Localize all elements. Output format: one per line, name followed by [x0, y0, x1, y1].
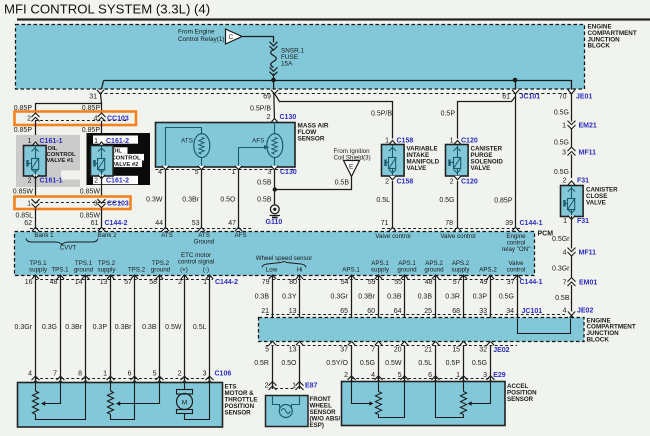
svg-text:3: 3: [483, 372, 487, 379]
svg-text:VALVE #2: VALVE #2: [112, 162, 140, 168]
svg-text:1: 1: [450, 138, 454, 145]
svg-text:15: 15: [452, 347, 460, 354]
svg-text:3: 3: [94, 200, 98, 207]
svg-text:55: 55: [394, 279, 402, 286]
svg-text:0.3Gr: 0.3Gr: [14, 324, 32, 331]
svg-text:JE02: JE02: [577, 307, 593, 314]
svg-text:control: control: [507, 266, 526, 273]
svg-text:14: 14: [75, 279, 83, 286]
svg-text:C130: C130: [280, 169, 297, 176]
svg-text:supply: supply: [29, 266, 48, 273]
svg-text:0.3Br: 0.3Br: [115, 324, 132, 331]
svg-text:44: 44: [155, 220, 163, 227]
svg-text:Low: Low: [266, 266, 278, 273]
svg-text:0.5P/B: 0.5P/B: [371, 110, 392, 117]
svg-text:0.3Y: 0.3Y: [282, 294, 297, 301]
svg-text:37: 37: [507, 279, 515, 286]
svg-text:C161-2: C161-2: [106, 138, 129, 145]
svg-text:69: 69: [263, 94, 271, 101]
svg-text:2: 2: [28, 178, 32, 185]
svg-text:ground: ground: [424, 266, 444, 273]
svg-text:65: 65: [340, 308, 348, 315]
svg-text:57: 57: [124, 279, 132, 286]
svg-text:JC101: JC101: [520, 94, 541, 101]
svg-text:C161-1: C161-1: [40, 138, 63, 145]
svg-text:0.5G: 0.5G: [472, 360, 487, 367]
svg-text:0.5B: 0.5B: [257, 179, 272, 186]
svg-text:6: 6: [428, 372, 432, 379]
svg-text:(+): (+): [180, 266, 188, 273]
svg-text:70: 70: [559, 94, 567, 101]
svg-text:C161-2: C161-2: [106, 178, 129, 185]
svg-text:APS.2: APS.2: [479, 266, 497, 273]
svg-text:control signal: control signal: [178, 258, 214, 265]
svg-text:68: 68: [452, 308, 460, 315]
svg-text:1: 1: [562, 123, 566, 130]
svg-text:0.5B: 0.5B: [335, 179, 350, 186]
svg-text:48: 48: [50, 279, 58, 286]
svg-text:0.3P: 0.3P: [473, 294, 488, 301]
svg-text:48: 48: [425, 279, 433, 286]
svg-text:ground: ground: [74, 266, 94, 273]
svg-text:F31: F31: [577, 218, 589, 225]
svg-text:4: 4: [158, 169, 162, 176]
svg-text:5: 5: [398, 372, 402, 379]
svg-text:C120: C120: [461, 138, 478, 145]
svg-text:62: 62: [24, 220, 32, 227]
svg-text:M: M: [182, 399, 188, 406]
svg-text:CONTROL: CONTROL: [112, 155, 142, 161]
svg-text:C158: C158: [397, 178, 414, 185]
svg-text:Bank 2: Bank 2: [97, 232, 117, 239]
svg-text:2: 2: [267, 114, 271, 121]
svg-text:SENSOR: SENSOR: [298, 136, 325, 143]
svg-text:4: 4: [371, 372, 375, 379]
svg-text:0.5W: 0.5W: [385, 360, 402, 367]
svg-text:0.85W: 0.85W: [13, 188, 34, 195]
svg-text:0.5Gr: 0.5Gr: [552, 236, 570, 243]
svg-text:2: 2: [94, 178, 98, 185]
svg-text:0.5P: 0.5P: [446, 360, 461, 367]
svg-text:13: 13: [289, 308, 297, 315]
svg-text:Hi: Hi: [297, 266, 303, 273]
svg-text:1: 1: [203, 279, 207, 286]
svg-text:MF11: MF11: [579, 250, 597, 257]
svg-text:C144-2: C144-2: [215, 279, 238, 286]
svg-text:E87: E87: [305, 383, 318, 390]
svg-text:2: 2: [450, 178, 454, 185]
svg-text:C144-2: C144-2: [105, 220, 128, 227]
svg-text:supply: supply: [371, 266, 390, 273]
svg-text:8: 8: [78, 371, 82, 378]
svg-text:2: 2: [178, 279, 182, 286]
svg-text:0.3Br: 0.3Br: [182, 197, 199, 204]
svg-text:71: 71: [381, 220, 389, 227]
svg-text:0.3Br: 0.3Br: [65, 324, 82, 331]
svg-text:1: 1: [27, 200, 31, 207]
svg-text:C144-1: C144-1: [520, 220, 543, 227]
svg-text:Valve control: Valve control: [375, 233, 410, 240]
svg-text:1: 1: [103, 371, 107, 378]
svg-text:0.3Br: 0.3Br: [358, 294, 375, 301]
svg-text:3: 3: [268, 169, 272, 176]
svg-text:C144-1: C144-1: [520, 279, 543, 286]
svg-text:0.5L: 0.5L: [376, 197, 390, 204]
svg-text:0.5G: 0.5G: [360, 360, 375, 367]
svg-text:2: 2: [344, 372, 348, 379]
svg-text:ATS: ATS: [161, 232, 173, 239]
svg-text:CC103: CC103: [107, 115, 129, 122]
svg-text:ground: ground: [397, 266, 417, 273]
svg-text:79: 79: [262, 279, 270, 286]
svg-text:59: 59: [368, 279, 376, 286]
svg-text:0.5G: 0.5G: [499, 294, 514, 301]
svg-text:From Engine: From Engine: [178, 29, 215, 36]
svg-text:Wheel speed sensor: Wheel speed sensor: [256, 255, 312, 262]
svg-text:MFI CONTROL SYSTEM (3.3L) (4): MFI CONTROL SYSTEM (3.3L) (4): [4, 2, 210, 17]
svg-text:53: 53: [192, 220, 200, 227]
svg-text:0.3Gr: 0.3Gr: [330, 294, 348, 301]
svg-text:E: E: [349, 164, 354, 171]
svg-text:6: 6: [128, 371, 132, 378]
svg-text:G110: G110: [266, 219, 283, 226]
svg-text:4: 4: [94, 115, 98, 122]
svg-text:0.85W: 0.85W: [80, 212, 101, 219]
svg-text:0.5B: 0.5B: [555, 295, 570, 302]
svg-text:C130: C130: [280, 114, 297, 121]
svg-text:AFS: AFS: [252, 137, 264, 144]
svg-text:E29: E29: [493, 372, 506, 379]
svg-text:2: 2: [178, 371, 182, 378]
svg-text:16: 16: [25, 279, 33, 286]
svg-text:supply: supply: [452, 266, 471, 273]
svg-text:ground: ground: [151, 266, 171, 273]
svg-text:0.85P: 0.85P: [14, 127, 33, 134]
svg-text:60: 60: [367, 308, 375, 315]
svg-text:0.3B: 0.3B: [418, 294, 433, 301]
svg-text:C158: C158: [397, 138, 414, 145]
svg-text:32: 32: [479, 347, 487, 354]
svg-text:PCM: PCM: [538, 231, 554, 238]
svg-text:2: 2: [385, 178, 389, 185]
svg-text:34: 34: [506, 308, 514, 315]
svg-text:BLOCK: BLOCK: [588, 43, 611, 50]
svg-text:(-): (-): [203, 266, 209, 273]
svg-text:61: 61: [502, 94, 510, 101]
svg-text:JC101: JC101: [522, 308, 543, 315]
svg-text:58: 58: [149, 279, 157, 286]
svg-text:TPS.2: TPS.2: [128, 266, 146, 273]
svg-text:CC103: CC103: [107, 200, 129, 207]
svg-text:7: 7: [371, 347, 375, 354]
svg-text:0.85W: 0.85W: [80, 188, 101, 195]
svg-text:1: 1: [385, 138, 389, 145]
svg-text:0.5L: 0.5L: [418, 360, 432, 367]
svg-text:13: 13: [100, 279, 108, 286]
svg-text:0.5P: 0.5P: [441, 110, 456, 117]
svg-text:3: 3: [203, 371, 207, 378]
svg-text:VALVE: VALVE: [586, 199, 606, 206]
svg-text:0.3R: 0.3R: [445, 294, 460, 301]
svg-text:31: 31: [89, 94, 97, 101]
svg-text:54: 54: [341, 279, 349, 286]
svg-text:0.5O: 0.5O: [220, 197, 236, 204]
svg-text:C: C: [229, 34, 234, 41]
svg-text:0.5B: 0.5B: [257, 197, 272, 204]
svg-text:5: 5: [195, 169, 199, 176]
svg-text:80: 80: [289, 279, 297, 286]
svg-text:4: 4: [28, 371, 32, 378]
svg-text:0.5R: 0.5R: [254, 360, 269, 367]
svg-text:VALVE: VALVE: [471, 165, 491, 172]
svg-text:0.5O: 0.5O: [281, 360, 297, 367]
svg-text:0.85P: 0.85P: [494, 197, 513, 204]
svg-text:0.3B: 0.3B: [255, 294, 270, 301]
svg-text:21: 21: [424, 347, 432, 354]
svg-text:33: 33: [479, 308, 487, 315]
svg-text:61: 61: [91, 220, 99, 227]
svg-text:F31: F31: [577, 178, 589, 185]
svg-text:0.5Y/O: 0.5Y/O: [326, 360, 348, 367]
svg-text:2: 2: [563, 178, 567, 185]
svg-text:Bank 1: Bank 1: [34, 232, 54, 239]
svg-text:3: 3: [562, 150, 566, 157]
svg-text:39: 39: [505, 220, 513, 227]
svg-text:BLOCK: BLOCK: [587, 337, 610, 344]
svg-text:0.3P: 0.3P: [93, 324, 108, 331]
svg-text:EM21: EM21: [579, 123, 597, 130]
svg-text:49: 49: [480, 279, 488, 286]
svg-text:C161-1: C161-1: [40, 178, 63, 185]
svg-text:4: 4: [563, 250, 567, 257]
svg-text:VALVE: VALVE: [407, 165, 427, 172]
svg-text:SENSOR: SENSOR: [225, 409, 252, 416]
svg-text:1: 1: [232, 169, 236, 176]
svg-text:VALVE #1: VALVE #1: [47, 158, 75, 164]
svg-text:0.85L: 0.85L: [15, 212, 33, 219]
svg-text:5: 5: [265, 347, 269, 354]
svg-text:47: 47: [228, 220, 236, 227]
svg-text:JE02: JE02: [493, 347, 509, 354]
svg-text:Control Relay(1): Control Relay(1): [178, 36, 225, 43]
svg-text:Valve control: Valve control: [440, 233, 475, 240]
svg-text:0.5G: 0.5G: [554, 110, 569, 117]
svg-text:AFS: AFS: [234, 232, 246, 239]
svg-text:ESP): ESP): [310, 422, 324, 429]
svg-text:EM01: EM01: [579, 280, 597, 287]
svg-text:2: 2: [27, 115, 31, 122]
svg-text:1: 1: [456, 372, 460, 379]
svg-text:C106: C106: [215, 371, 232, 378]
svg-text:Ground: Ground: [194, 239, 215, 246]
svg-text:TPS.1: TPS.1: [51, 266, 69, 273]
svg-text:C120: C120: [461, 178, 478, 185]
svg-text:13: 13: [289, 347, 297, 354]
svg-text:0.5W: 0.5W: [165, 324, 182, 331]
svg-text:0.5P/B: 0.5P/B: [250, 106, 271, 113]
svg-text:APS.1: APS.1: [342, 266, 360, 273]
svg-text:57: 57: [453, 279, 461, 286]
svg-text:0.85P: 0.85P: [82, 127, 101, 134]
svg-text:0.5G: 0.5G: [439, 197, 454, 204]
svg-text:4: 4: [563, 307, 567, 314]
svg-text:5: 5: [153, 371, 157, 378]
svg-text:78: 78: [445, 220, 453, 227]
svg-text:0.3B: 0.3B: [387, 294, 402, 301]
svg-text:0.5L: 0.5L: [193, 324, 207, 331]
svg-text:21: 21: [261, 308, 269, 315]
svg-text:1: 1: [563, 218, 567, 225]
svg-text:0.3Gr: 0.3Gr: [552, 265, 570, 272]
svg-text:0.5G: 0.5G: [554, 139, 569, 146]
svg-text:20: 20: [394, 347, 402, 354]
svg-text:relay "ON": relay "ON": [502, 246, 531, 253]
svg-text:1: 1: [28, 138, 32, 145]
svg-text:2: 2: [265, 383, 269, 390]
svg-text:37: 37: [340, 347, 348, 354]
svg-text:15A: 15A: [281, 61, 293, 68]
svg-text:SENSOR: SENSOR: [507, 396, 534, 403]
svg-text:25: 25: [424, 308, 432, 315]
svg-text:1: 1: [94, 138, 98, 145]
svg-text:0.5G: 0.5G: [554, 169, 569, 176]
svg-text:0.3B: 0.3B: [142, 324, 157, 331]
svg-text:7: 7: [53, 371, 57, 378]
svg-text:0.3W: 0.3W: [146, 197, 163, 204]
svg-text:MF11: MF11: [579, 150, 597, 157]
svg-text:64: 64: [394, 308, 402, 315]
svg-text:0.3G: 0.3G: [42, 324, 57, 331]
svg-text:JE01: JE01: [576, 94, 592, 101]
svg-text:supply: supply: [98, 266, 117, 273]
svg-text:7: 7: [563, 280, 567, 287]
svg-text:CVVT: CVVT: [60, 245, 77, 252]
svg-text:ATS: ATS: [181, 137, 193, 144]
